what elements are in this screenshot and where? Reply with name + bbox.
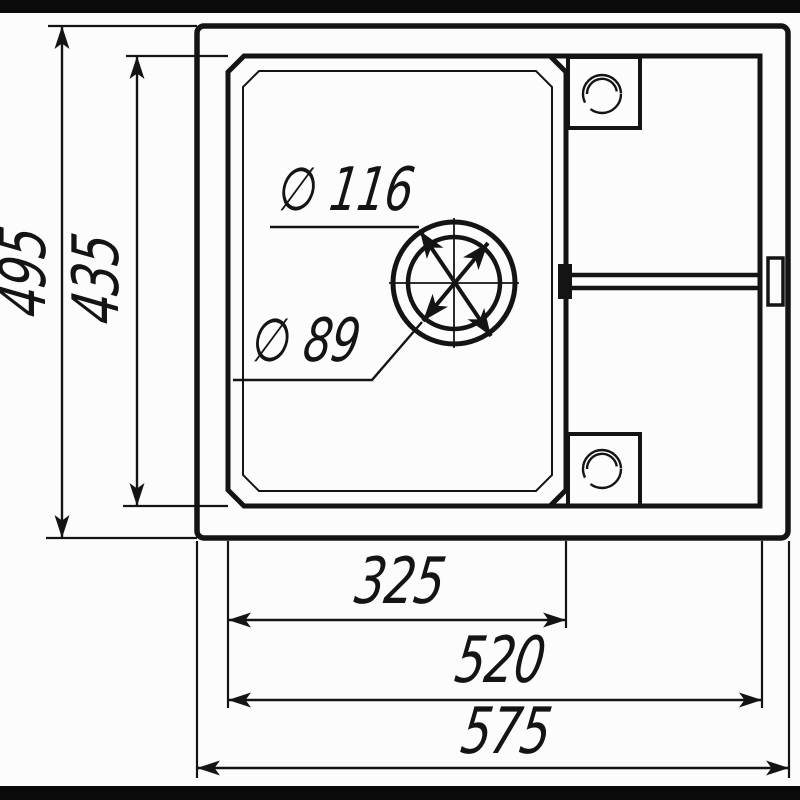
drainboard-divider bbox=[558, 264, 760, 299]
bowl-inner-slope bbox=[243, 71, 552, 491]
tap-hole-box-top bbox=[568, 57, 640, 128]
tap-hole-box-bottom bbox=[568, 434, 640, 506]
dimension-label-inner-width: 520 bbox=[451, 629, 548, 693]
dimension-lines bbox=[62, 26, 789, 768]
dimension-label-inner-height: 435 bbox=[65, 230, 129, 327]
dimension-label-drain-hole-diameter: ∅ 89 bbox=[249, 311, 364, 371]
photo-border-top bbox=[0, 0, 800, 13]
extension-lines bbox=[46, 26, 789, 778]
sink-technical-drawing: 495 435 ∅ 116 ∅ 89 325 520 575 bbox=[0, 0, 800, 800]
photo-border-bottom bbox=[0, 786, 800, 800]
dimension-label-overall-height: 495 bbox=[0, 223, 56, 320]
dimension-label-drain-flange-diameter: ∅ 116 bbox=[275, 160, 417, 220]
tap-hole-circle-top bbox=[583, 75, 621, 113]
sink-outer-edge bbox=[197, 26, 788, 538]
dimension-label-bowl-width: 325 bbox=[351, 550, 448, 614]
drawing-canvas bbox=[0, 0, 800, 800]
side-tab bbox=[768, 258, 783, 305]
sink-inner-rim bbox=[228, 56, 760, 506]
dimension-label-overall-width: 575 bbox=[457, 700, 554, 764]
tap-hole-circle-bottom bbox=[583, 450, 621, 488]
